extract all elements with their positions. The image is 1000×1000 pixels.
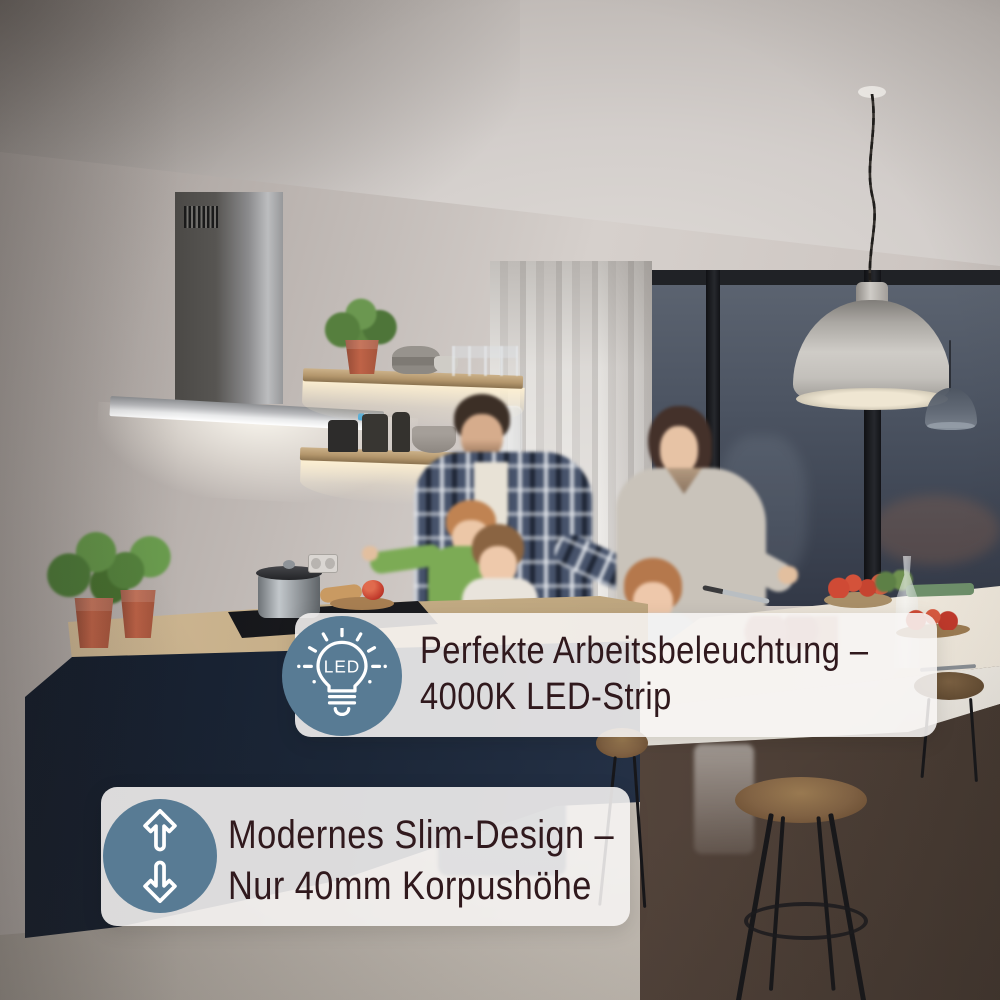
window-reflection-cooking	[870, 495, 1000, 565]
pot-lid-knob	[283, 560, 295, 569]
stool-front-footring	[744, 902, 868, 940]
arrows-icon-circle	[103, 799, 217, 913]
hood-vent-grille	[184, 206, 218, 228]
banner-slim-line2: Nur 40mm Korpushöhe	[228, 861, 614, 912]
spice-canisters-2	[362, 414, 388, 452]
tomato	[362, 580, 384, 600]
cutting-board	[330, 597, 394, 610]
small-pendant-rim	[927, 422, 975, 430]
led-icon-circle: LED	[282, 616, 402, 736]
pot-rim	[72, 598, 116, 611]
feature-banner-led-text: Perfekte Arbeitsbeleuchtung – 4000K LED-…	[420, 628, 942, 720]
gray-bowl	[412, 426, 456, 453]
stool-front-seat	[735, 777, 867, 823]
pot-rim	[343, 340, 381, 349]
storage-jar	[392, 412, 410, 452]
banner-led-line1: Perfekte Arbeitsbeleuchtung –	[420, 628, 869, 674]
feature-banner-slim-text: Modernes Slim-Design – Nur 40mm Korpushö…	[228, 810, 677, 912]
led-icon-label: LED	[324, 657, 360, 677]
banner-slim-line1: Modernes Slim-Design –	[228, 810, 614, 861]
height-adjust-arrows-icon	[135, 806, 185, 906]
marketing-image: LED Perfekte Arbeitsbeleuchtung – 4000K …	[0, 0, 1000, 1000]
pot-rim	[118, 590, 158, 602]
outlet-socket	[311, 558, 321, 569]
mother-face	[660, 426, 698, 474]
banner-led-line2: 4000K LED-Strip	[420, 674, 869, 720]
spice-canisters	[328, 420, 358, 452]
wall-outlet	[308, 554, 338, 573]
lamp-inner-rim	[796, 388, 948, 410]
boy-green-hand	[362, 546, 378, 561]
outlet-socket-2	[325, 558, 335, 569]
wine-glasses	[452, 346, 518, 376]
lamp-chain	[856, 94, 890, 294]
cooking-pot	[258, 574, 320, 618]
bowl-stack	[392, 346, 440, 374]
led-bulb-icon: LED	[294, 628, 390, 724]
small-pendant-cord	[949, 340, 951, 392]
mother-hand	[778, 566, 798, 584]
